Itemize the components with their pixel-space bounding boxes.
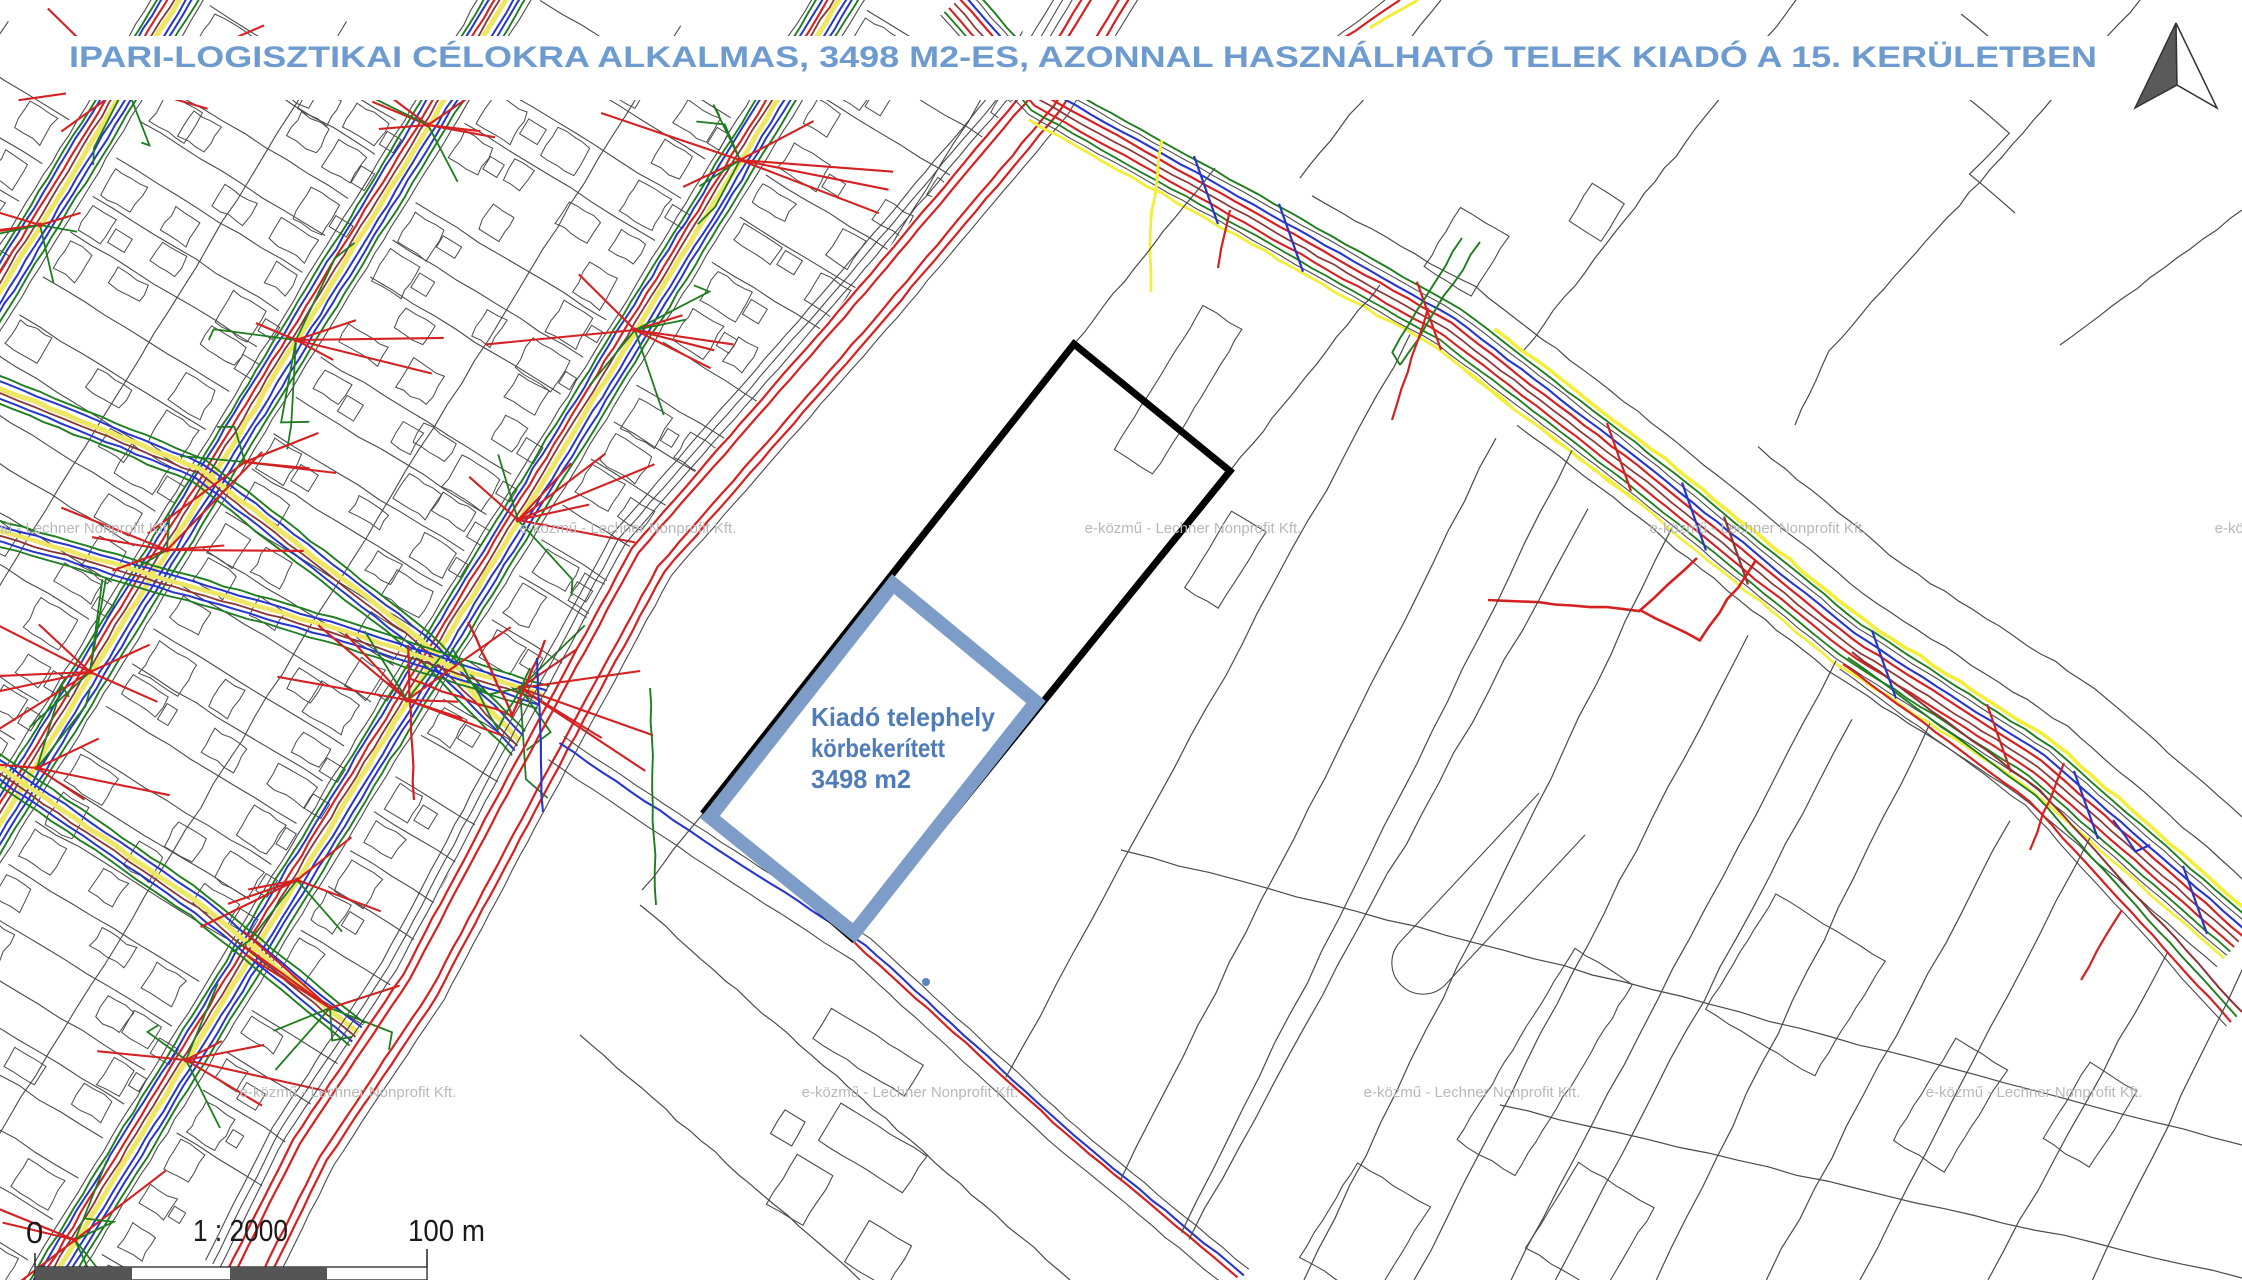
- svg-text:IPARI-LOGISZTIKAI CÉLOKRA ALKA: IPARI-LOGISZTIKAI CÉLOKRA ALKALMAS, 3498…: [69, 40, 2097, 74]
- svg-text:Kiadó telephely: Kiadó telephely: [811, 702, 996, 732]
- svg-text:e-közmű - Lechner Nonprofit Kf: e-közmű - Lechner Nonprofit Kft.: [802, 1084, 1019, 1101]
- svg-text:e-közmű - Lechner Nonprofit Kf: e-közmű - Lechner Nonprofit Kft.: [240, 1084, 457, 1101]
- svg-text:e-közmű - Lechner Nonprofit Kf: e-közmű - Lechner Nonprofit Kft.: [520, 520, 737, 537]
- svg-text:100 m: 100 m: [408, 1213, 485, 1248]
- svg-text:e-közmű - Lechner Nonprofit Kf: e-közmű - Lechner Nonprofit Kft.: [0, 520, 171, 537]
- svg-text:e-közmű - Lechner Nonprofit Kf: e-közmű - Lechner Nonprofit Kft.: [1650, 520, 1867, 537]
- svg-text:e-közmű - Lechner Nonprofit Kf: e-közmű - Lechner Nonprofit Kft.: [1364, 1084, 1581, 1101]
- svg-text:körbekerített: körbekerített: [811, 733, 945, 763]
- svg-text:e-közmű - Lechner Nonprofit Kf: e-közmű - Lechner Nonprofit Kft.: [2215, 520, 2242, 537]
- svg-text:e-közmű - Lechner Nonprofit Kf: e-közmű - Lechner Nonprofit Kft.: [1926, 1084, 2143, 1101]
- svg-text:3498 m2: 3498 m2: [811, 764, 911, 794]
- svg-text:e-közmű - Lechner Nonprofit Kf: e-közmű - Lechner Nonprofit Kft.: [1085, 520, 1302, 537]
- svg-text:1 : 2000: 1 : 2000: [193, 1213, 288, 1248]
- svg-text:0: 0: [26, 1215, 43, 1250]
